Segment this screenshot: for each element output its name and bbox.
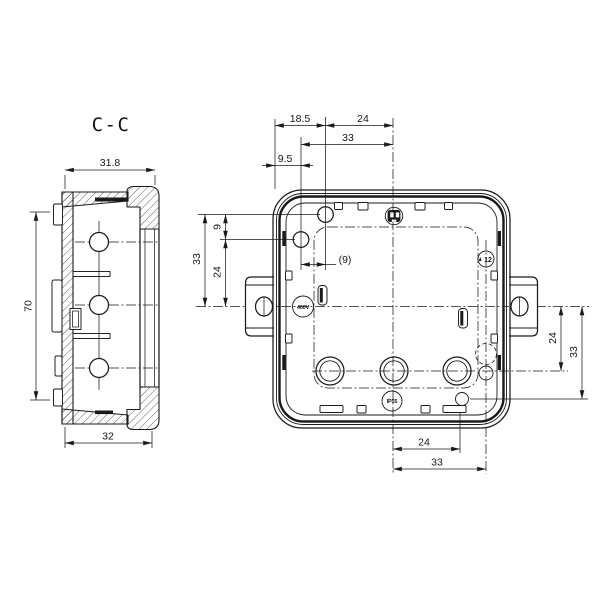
- dim-top-hole-to-center: 24: [357, 113, 369, 125]
- logo-window: [396, 212, 399, 217]
- pilot-hole: [456, 393, 469, 406]
- dim-bottom-center-to-hole2: 33: [431, 457, 443, 469]
- rim-clip: [358, 203, 368, 211]
- rim-clip: [335, 203, 343, 210]
- section-entry-hole: [90, 296, 109, 315]
- section-bottom-clip: [54, 389, 63, 406]
- section-holes: [75, 221, 158, 390]
- section-entry-hole: [90, 233, 109, 252]
- section-lug-pocket: [70, 309, 81, 330]
- dim-top-hole2-to-center: 33: [342, 132, 354, 144]
- section-top-wedge: [95, 198, 127, 202]
- logo-icon: [385, 207, 402, 224]
- rim-tab-wide: [443, 406, 466, 413]
- dim-top-offset: 18.5: [290, 113, 311, 125]
- groove-bar: [282, 231, 285, 246]
- section-bottom-wedge: [95, 411, 113, 415]
- section-left-wall: [62, 192, 73, 424]
- dim-left-hole-to-center: 24: [212, 266, 224, 278]
- section-entry-hole: [90, 359, 109, 378]
- section-rib: [73, 272, 110, 277]
- rim-clip: [491, 271, 498, 280]
- section-rib: [73, 334, 110, 339]
- voltage-marking: 400V: [297, 305, 310, 311]
- dim-section-width: 32: [102, 431, 114, 443]
- section-top-flange: [127, 187, 159, 230]
- logo-notch: [392, 220, 397, 222]
- ip-rating-marking: IP55: [387, 399, 398, 405]
- section-side-tab: [55, 356, 62, 376]
- rim-clip: [415, 203, 425, 211]
- groove-bar: [282, 355, 285, 370]
- rim-clip: [421, 406, 430, 414]
- rim-clip: [445, 203, 453, 210]
- section-top-clip: [54, 204, 63, 225]
- box-rim-line: [277, 194, 507, 425]
- groove-bar: [498, 231, 501, 246]
- dim-bottom-center-to-hole: 24: [418, 437, 430, 449]
- rim-tab-wide: [320, 406, 343, 413]
- drawing-canvas: C-C: [0, 0, 600, 600]
- section-mount-lug: [52, 280, 62, 332]
- rim-clip: [491, 334, 498, 343]
- front-view: 12 400V IP55 18.5: [191, 113, 589, 474]
- dim-ref-hole-gap: (9): [339, 254, 352, 266]
- front-outline: [246, 190, 538, 428]
- section-view: C-C: [23, 114, 160, 448]
- logo-window: [390, 212, 393, 217]
- section-label: C-C: [92, 114, 131, 136]
- dim-right-center-to-hole2: 33: [568, 346, 580, 358]
- groove-bar: [498, 355, 501, 370]
- rim-clip: [286, 271, 293, 280]
- dim-section-height: 70: [23, 300, 35, 312]
- dim-top-edge-offset: 9.5: [278, 153, 293, 165]
- rim-clip: [286, 334, 293, 343]
- dim-left-hole2-to-center: 33: [191, 253, 203, 265]
- cover-seat-phantom: [314, 227, 478, 388]
- technical-drawing: C-C: [0, 0, 600, 600]
- date-wheel-marking: 12: [484, 257, 492, 264]
- voltage-stamp: 400V: [293, 296, 314, 317]
- rim-clip: [357, 406, 366, 414]
- ip-rating-stamp: IP55: [382, 391, 402, 411]
- wall-slot-bar: [460, 311, 463, 326]
- dim-section-depth: 31.8: [100, 157, 121, 169]
- section-bottom-flange: [127, 387, 159, 430]
- date-wheel-pointer: [479, 257, 482, 261]
- dim-left-hole-gap: 9: [212, 224, 224, 230]
- wall-slot-bar: [320, 288, 323, 303]
- dim-right-center-to-hole: 24: [547, 332, 559, 344]
- front-features: 12 400V IP55: [293, 207, 497, 411]
